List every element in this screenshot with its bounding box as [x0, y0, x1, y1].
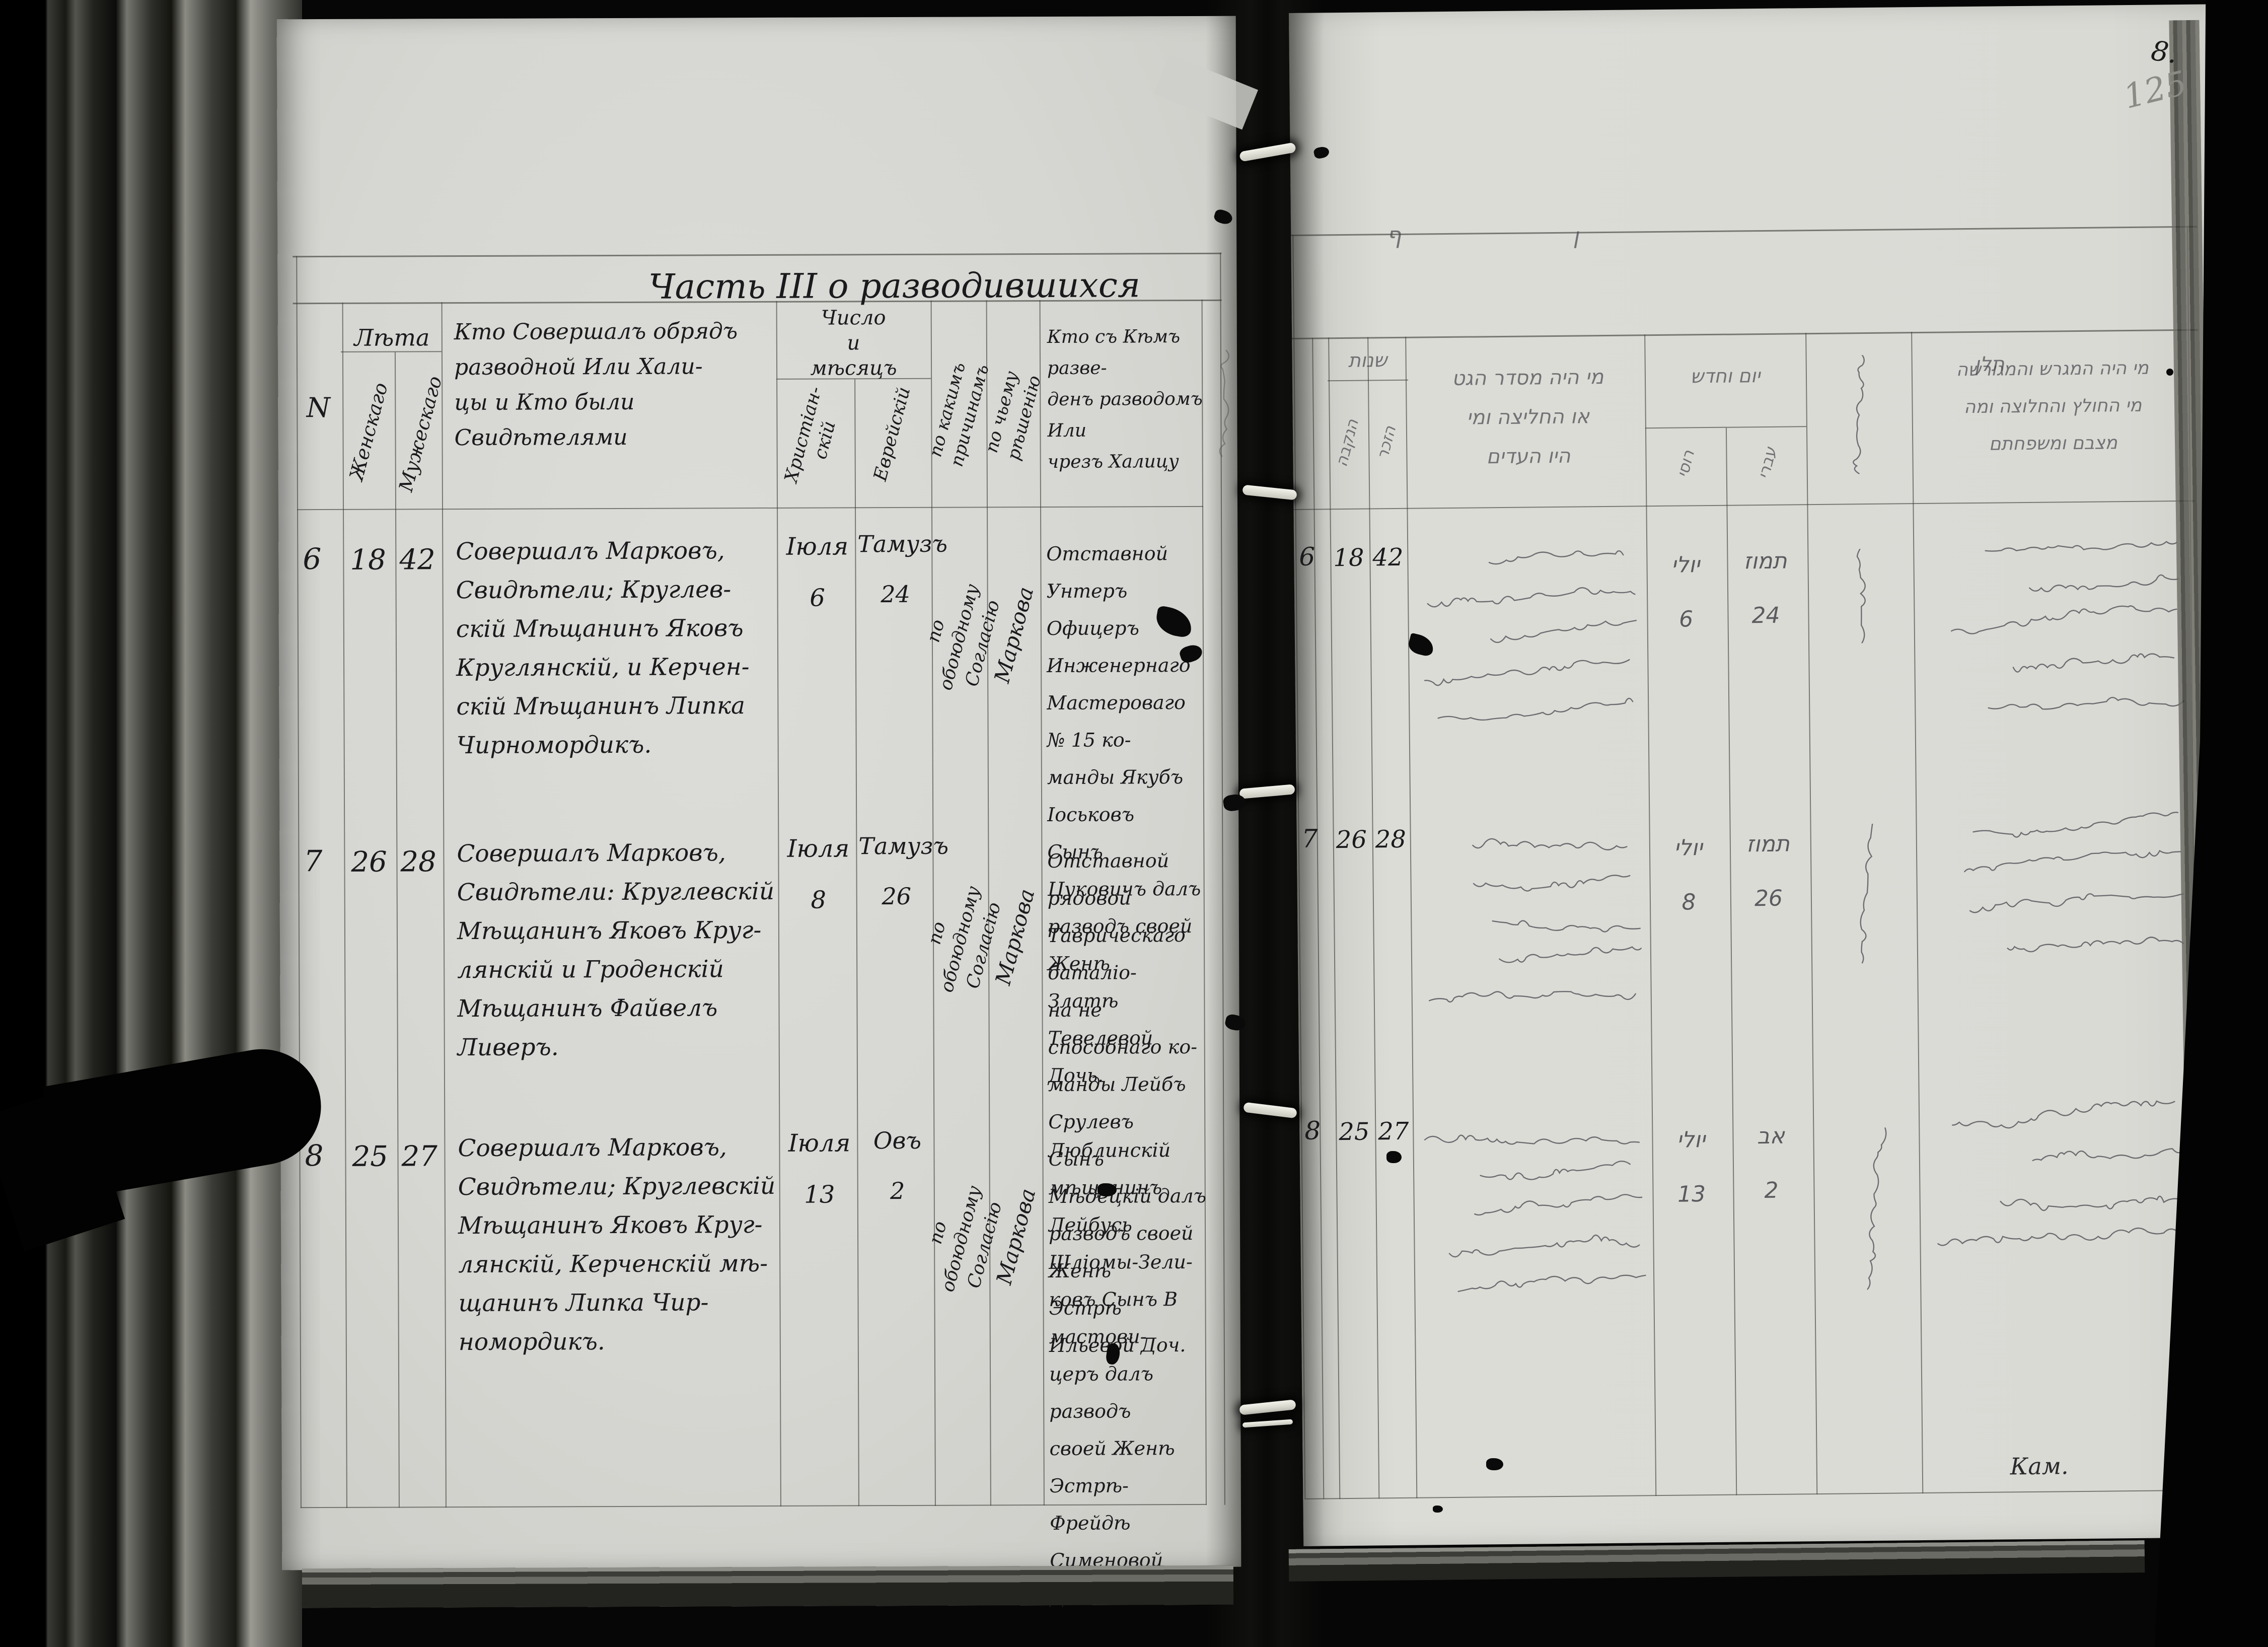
- binding-fold: [1206, 0, 1324, 1647]
- column-header-ages-hebrew: שנות: [1327, 345, 1408, 376]
- binding-hole: [1486, 1458, 1503, 1470]
- right-page-bottom-edges: [1289, 1540, 2145, 1582]
- date-christian: Іюля 6: [779, 521, 855, 624]
- age-female: 25: [352, 1135, 395, 1179]
- age-male: 28: [400, 840, 443, 884]
- rotated-entry-cursive-tall: [1845, 1125, 1889, 1358]
- book-scan: Часть III о разводившихся N Лѣта Женскаг…: [0, 0, 2268, 1647]
- ink-blot: [1098, 1183, 1117, 1196]
- left-page: Часть III о разводившихся N Лѣта Женскаг…: [277, 16, 1241, 1570]
- rotated-entry-cursive: [1840, 535, 1882, 688]
- date-jewish: Тамузъ 24: [857, 519, 933, 620]
- column-header-date-russian-hebrew: רוסי: [1664, 422, 1708, 506]
- column-header-age-female-hebrew: הנקבה: [1325, 401, 1369, 485]
- age-male: 42: [1372, 539, 1408, 577]
- date-jewish-hebrew: תמוז 24: [1728, 534, 1803, 643]
- age-male: 42: [399, 538, 442, 582]
- rotated-entry-cursive: [1843, 822, 1884, 975]
- performer-text: Совершалъ Марковъ, Свидѣтели; Круглевскі…: [458, 1128, 783, 1362]
- column-header-age-male-hebrew: הזכר: [1364, 400, 1409, 484]
- date-russian-hebrew: יולי 6: [1649, 538, 1723, 647]
- column-header-ages: Лѣта: [342, 320, 442, 356]
- entry-number: 6: [303, 537, 338, 582]
- yiddish-entry-text: [1419, 814, 1644, 1017]
- yiddish-entry-text: [1422, 1106, 1647, 1309]
- date-jewish: Тамузъ 26: [858, 821, 934, 922]
- right-page: ף ן תלן שנות הנקבה הזכר מי היה מסדר הגט …: [1289, 4, 2235, 1546]
- column-header-reason-hebrew-cursive: [1839, 354, 1880, 497]
- age-male: 27: [401, 1135, 444, 1179]
- column-header-divorced-hebrew: מי היה המגרש והמגורשה מי החולץ והחלוצה ו…: [1924, 349, 2182, 464]
- fold-margin-cursive: [1206, 347, 1235, 459]
- book-left-page-stack-edge: [0, 0, 302, 1647]
- column-header-age-female: Женскаго: [337, 362, 401, 501]
- age-female: 26: [351, 841, 394, 885]
- column-header-number: N: [298, 387, 338, 429]
- date-russian-hebrew: יולי 13: [1654, 1113, 1728, 1222]
- column-header-divorced: Кто съ Кѣмъ разве- денъ разводомъ Или чр…: [1047, 321, 1205, 478]
- date-jewish-hebrew: תמוז 26: [1730, 817, 1806, 926]
- age-female: 25: [1339, 1113, 1374, 1151]
- divorce-text: Люблинскій мѣщанинъ Лейбусь Шліомы-Зели-…: [1048, 1131, 1208, 1616]
- clerk-signature: Кам.: [2010, 1448, 2068, 1484]
- binding-hole: [1433, 1506, 1443, 1513]
- ink-dot: [2166, 369, 2173, 376]
- age-male: 28: [1375, 821, 1411, 858]
- performer-text: Совершалъ Марковъ, Свидѣтели: Круглевскі…: [457, 833, 782, 1067]
- left-page-bottom-edges: [302, 1565, 1233, 1608]
- column-header-date-jewish-hebrew: עברי: [1745, 421, 1790, 505]
- column-header-date-hebrew: יום וחדש: [1645, 361, 1806, 392]
- date-christian: Іюля 13: [781, 1117, 857, 1221]
- date-christian: Іюля 8: [780, 823, 856, 926]
- date-russian-hebrew: יולי 8: [1651, 821, 1725, 930]
- yiddish-side-text: [1928, 1090, 2190, 1261]
- ink-blot: [1386, 1151, 1402, 1163]
- performer-text: Совершалъ Марковъ, Свидѣтели; Круглев- с…: [456, 531, 781, 765]
- entry-number: 8: [305, 1133, 340, 1179]
- yiddish-side-text: [1925, 798, 2187, 969]
- column-header-date-jewish: Еврейскій: [861, 365, 923, 503]
- margin-scribble: ף: [1386, 218, 1402, 254]
- age-female: 18: [350, 539, 393, 583]
- date-jewish-hebrew: אב 2: [1733, 1109, 1809, 1218]
- entry-number: 7: [304, 839, 339, 884]
- column-header-performer-hebrew: מי היה מסדר הגט או החליצה ומי היו העדים: [1416, 357, 1641, 477]
- age-male: 27: [1378, 1113, 1414, 1151]
- date-jewish: Овъ 2: [859, 1115, 935, 1216]
- age-female: 18: [1333, 539, 1369, 577]
- age-female: 26: [1336, 821, 1371, 859]
- column-header-date-christian: Христіан- скій: [776, 366, 853, 509]
- margin-scribble: ן: [1573, 219, 1579, 253]
- column-header-performer: Кто Совершалъ обрядъ разводной Или Хали-…: [454, 314, 777, 456]
- yiddish-side-text: [1922, 518, 2185, 728]
- yiddish-entry-text: [1416, 532, 1642, 735]
